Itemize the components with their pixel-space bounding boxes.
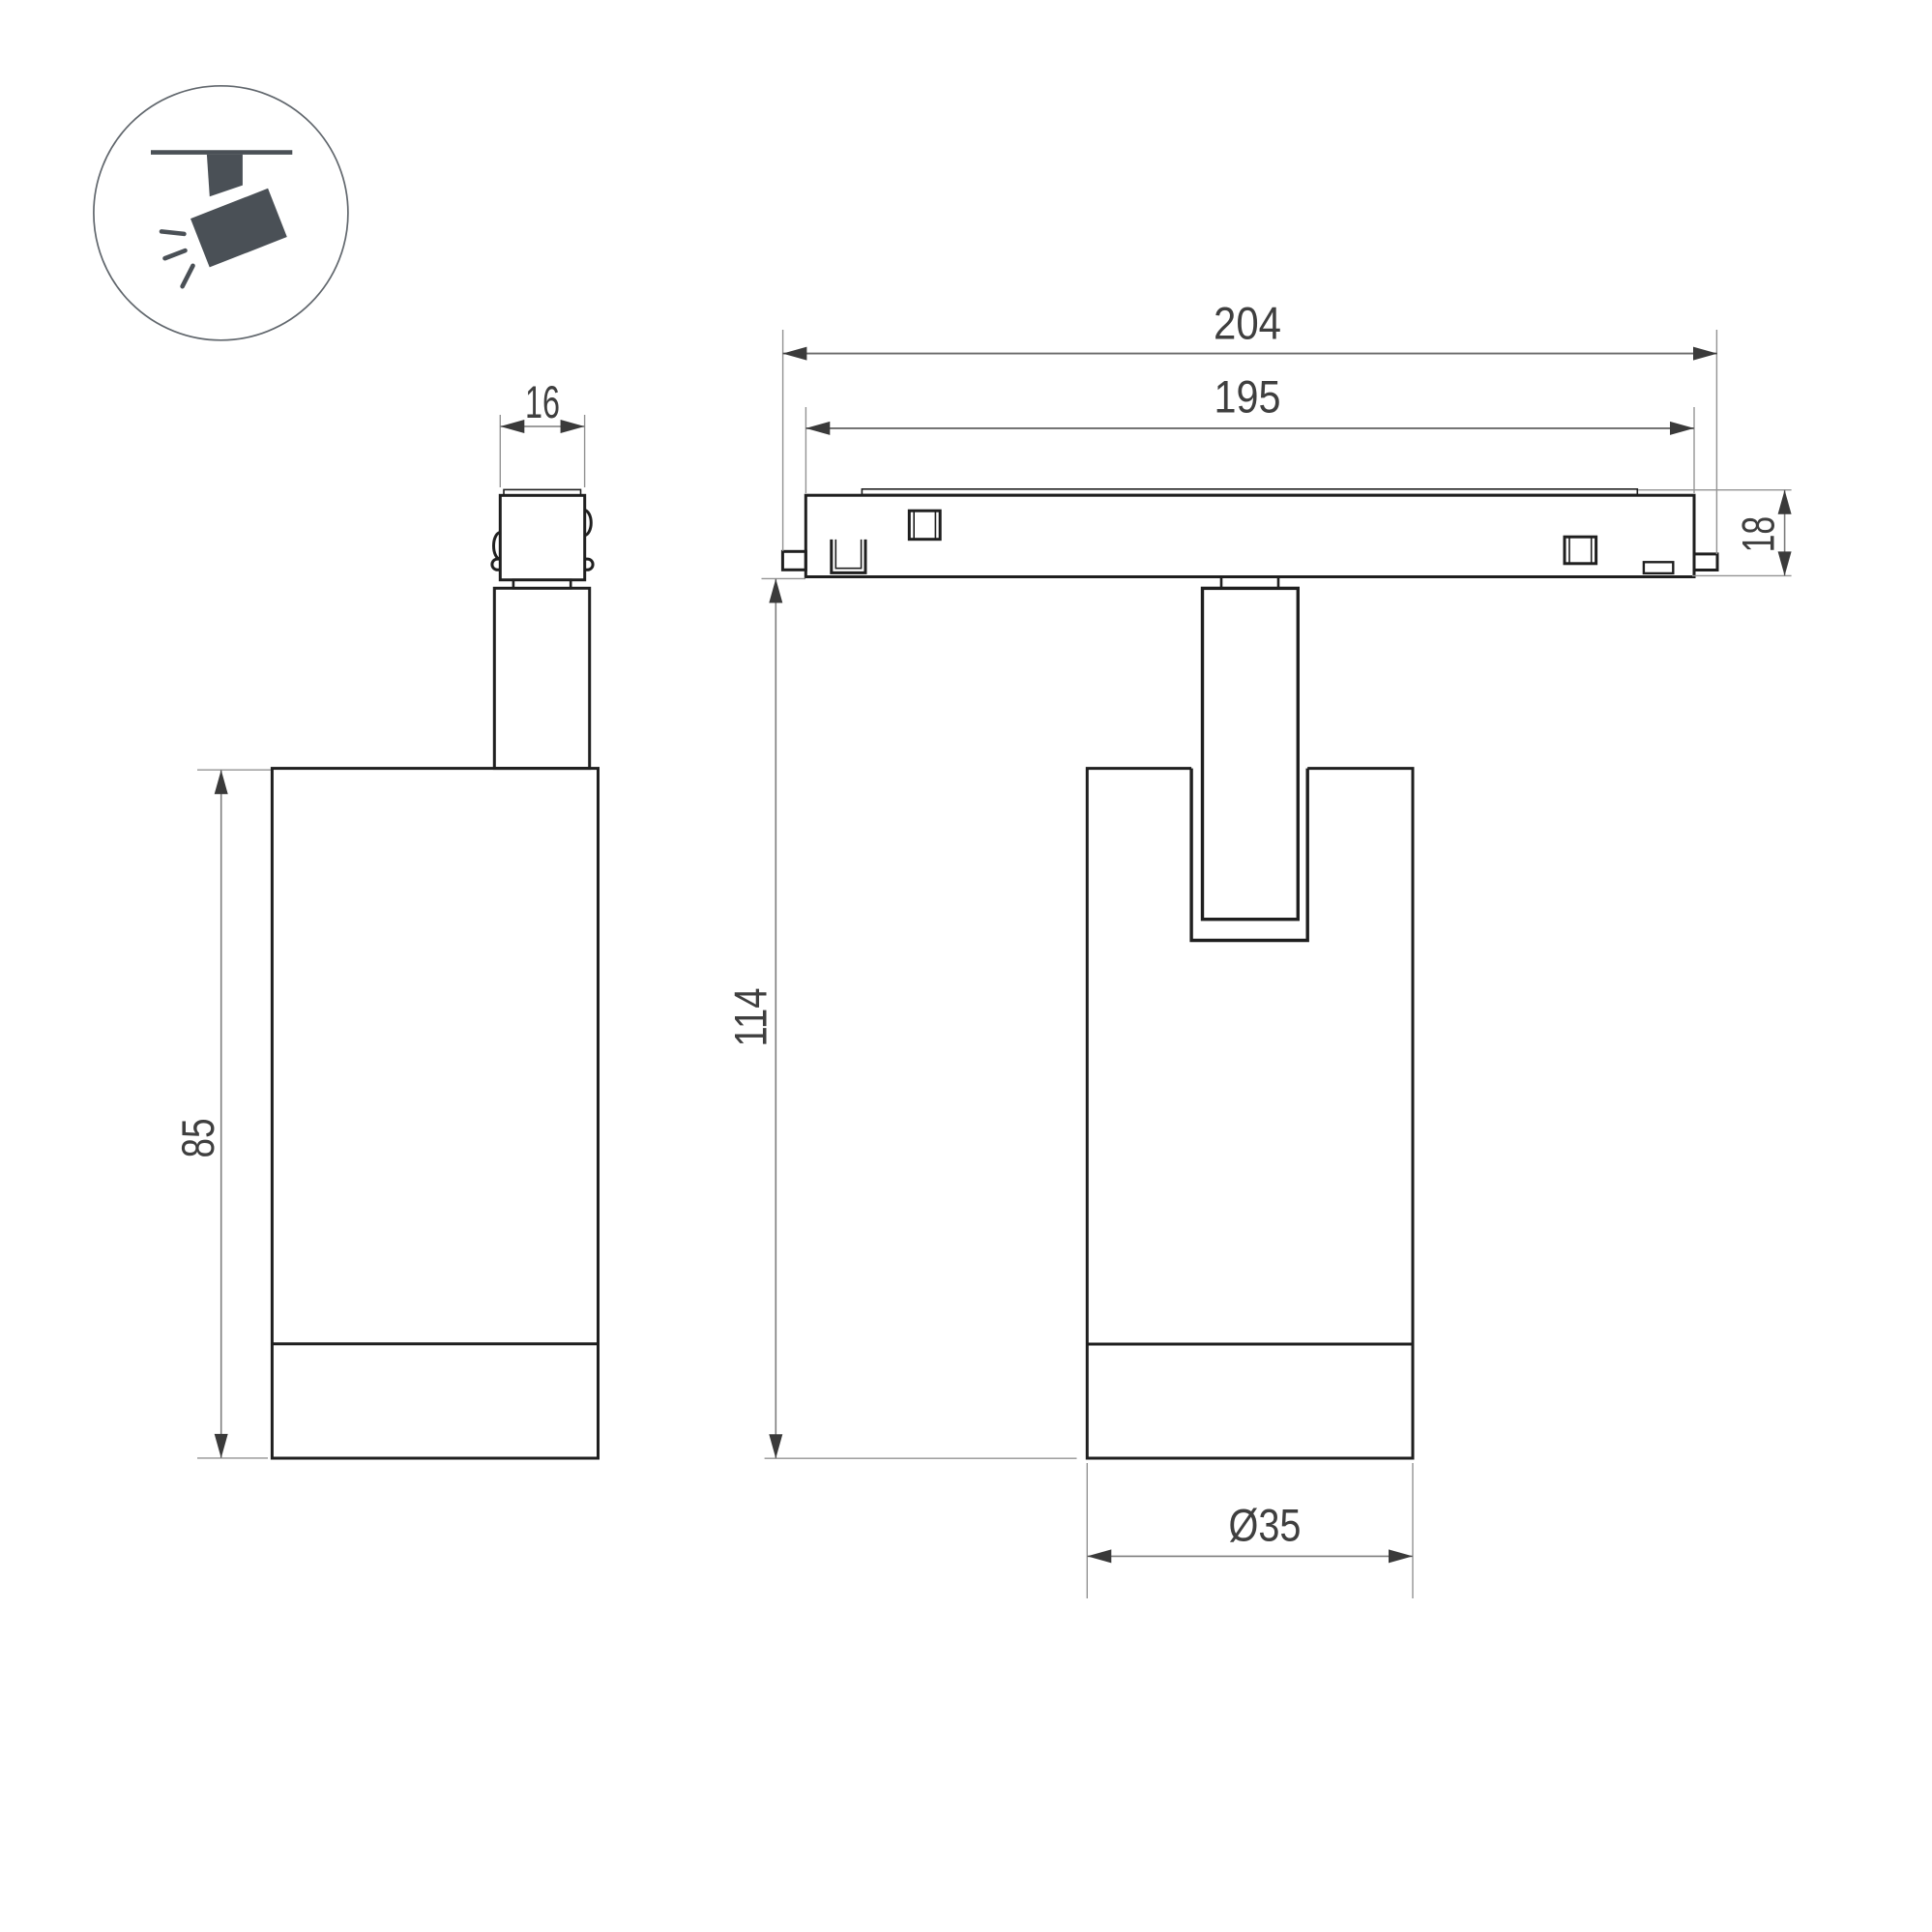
- svg-text:204: 204: [1214, 297, 1281, 348]
- svg-text:Ø35: Ø35: [1229, 1499, 1302, 1550]
- svg-text:16: 16: [525, 376, 560, 427]
- svg-text:85: 85: [172, 1119, 223, 1158]
- svg-text:114: 114: [725, 988, 776, 1047]
- svg-text:195: 195: [1215, 371, 1281, 423]
- svg-text:18: 18: [1733, 516, 1784, 553]
